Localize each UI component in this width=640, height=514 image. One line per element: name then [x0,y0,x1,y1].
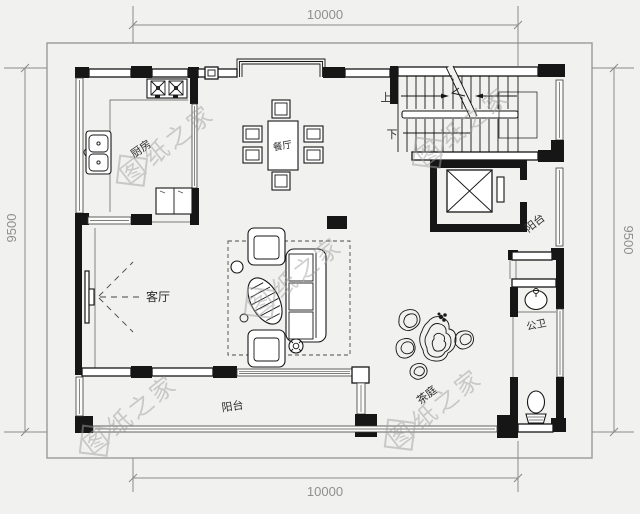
dimension-bottom: 10000 [307,484,343,499]
stair-up-label: 上 [381,91,392,104]
armchair [248,228,285,265]
rock [455,331,474,349]
dimension-left: 9500 [4,214,19,243]
kitchen-cabinet [156,188,192,214]
dimension-top: 10000 [307,7,343,22]
svg-text:纸之家: 纸之家 [139,100,219,171]
floor-lamp [289,339,303,353]
balcony-bottom: 阳台 [221,398,245,415]
toilet [526,391,546,423]
bathroom: 公卫 [518,289,556,424]
watermark: 图 纸之家 [373,358,490,461]
kitchen-sink [84,131,111,174]
balcony-bottom-label: 阳台 [221,398,245,415]
living-label: 客厅 [146,289,170,304]
floor-plan-canvas: 10000 10000 9500 9500 [0,0,640,514]
rock [410,363,427,379]
rock [399,310,420,331]
flower [438,313,447,322]
rock [396,339,415,359]
tv-unit [85,262,142,332]
stair-down-label: 下 [387,129,398,141]
dining-room: 餐厅 [243,100,323,190]
elevator [447,170,504,212]
watermark: 图 纸之家 [105,94,222,197]
dimension-right: 9500 [621,226,636,255]
watermark: 图 纸之家 [68,364,185,467]
elevator-door [497,177,504,202]
bathroom-label: 公卫 [526,318,548,333]
armchair [248,330,285,367]
bathroom-sink [518,289,556,313]
rock [420,313,456,362]
stove [147,79,187,98]
floor-plan-svg: 10000 10000 9500 9500 [0,0,640,514]
side-table [231,261,243,273]
